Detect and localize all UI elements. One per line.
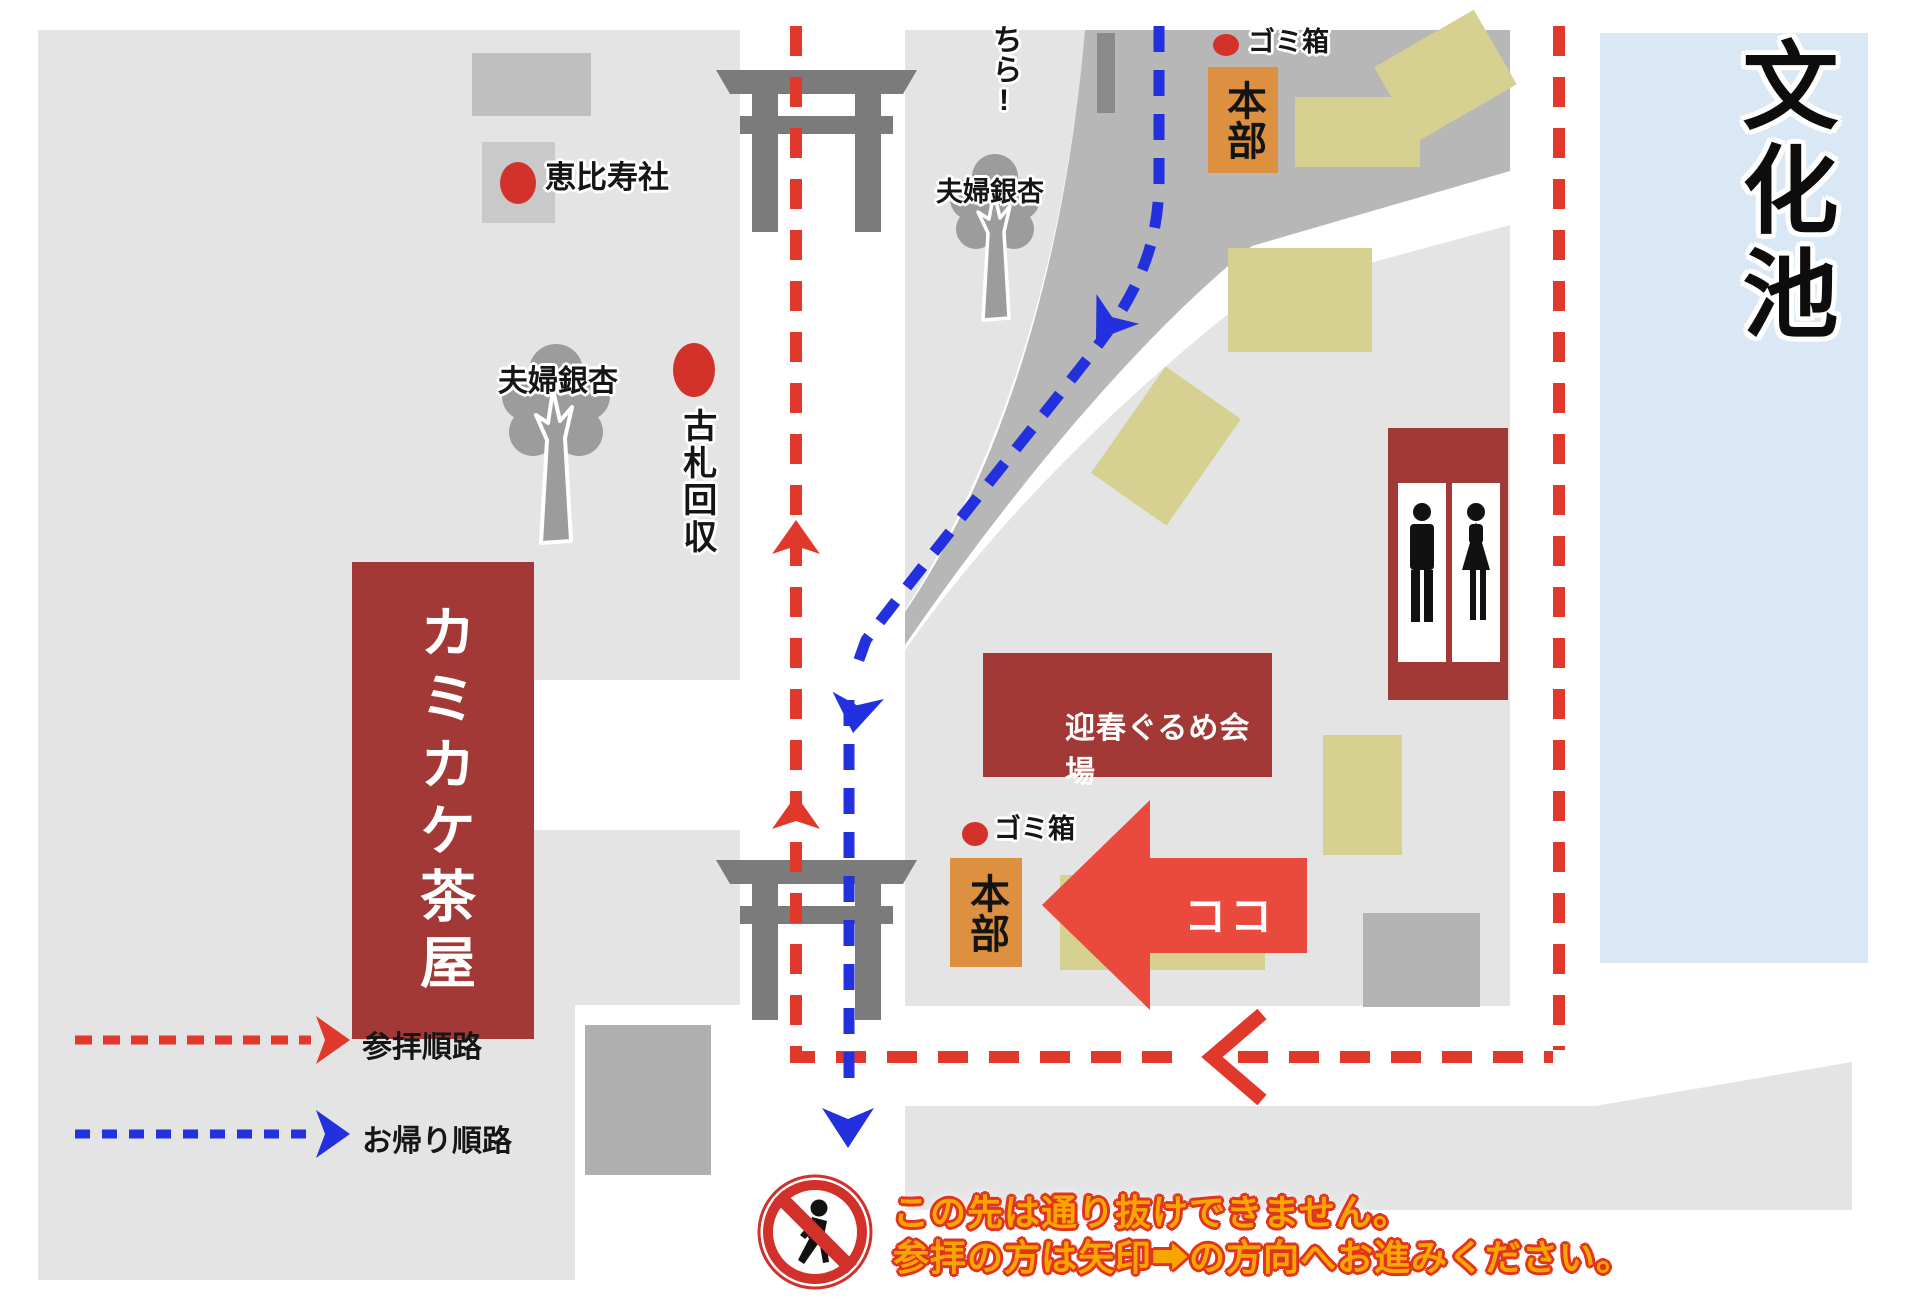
partial-route-text: ちら! — [988, 24, 1020, 117]
route-arrow-up-2 — [772, 795, 820, 829]
trash-center-label: ゴミ箱 — [994, 815, 1075, 843]
legend-visit-route: 参拝順路 — [362, 1022, 482, 1066]
teahouse-building: カミカケ茶屋 — [352, 562, 534, 1039]
road-post — [1097, 33, 1115, 113]
building-block — [1363, 913, 1480, 1007]
ground-areas — [38, 30, 1852, 1280]
shrine-guide-map: ちら! 恵比寿社 夫婦銀杏 古札回収 夫婦銀杏 ゴミ箱 ゴミ箱 本部 本部 カミ… — [0, 0, 1920, 1310]
trash-north-dot — [1213, 34, 1239, 56]
ebisu-label: 恵比寿社 — [545, 162, 669, 195]
building-block — [585, 1025, 711, 1175]
headquarters-north: 本部 — [1208, 67, 1278, 173]
gourmet-hall-building: 迎春ぐるめ会場 — [983, 653, 1272, 777]
return-arrow-end — [822, 1108, 874, 1148]
gourmet-hall-label: 迎春ぐるめ会場 — [1065, 703, 1272, 791]
toilet-building — [1388, 428, 1508, 700]
pond-label: 文化池 — [1712, 36, 1851, 396]
old-talisman-label: 古札回収 — [678, 408, 714, 556]
ginkgo-north-label: 夫婦銀杏 — [936, 178, 1044, 206]
return-arrow-mid — [827, 692, 884, 737]
torii-gate-south — [716, 860, 917, 1020]
building-block — [472, 53, 591, 116]
ginkgo-west-label: 夫婦銀杏 — [498, 366, 618, 398]
legend-return-route: お帰り順路 — [362, 1116, 512, 1160]
old-talisman-dot — [673, 343, 715, 397]
no-pedestrian-sign — [759, 1176, 871, 1288]
torii-gate-north — [716, 70, 917, 232]
trash-center-dot — [962, 822, 988, 846]
trash-north-label: ゴミ箱 — [1248, 28, 1329, 56]
ebisu-dot — [500, 162, 536, 204]
headquarters-center: 本部 — [950, 858, 1022, 967]
here-label: ココ — [1152, 883, 1308, 944]
warning-line-2: 参拝の方は矢印➡の方向へお進みください。 — [893, 1229, 1633, 1281]
